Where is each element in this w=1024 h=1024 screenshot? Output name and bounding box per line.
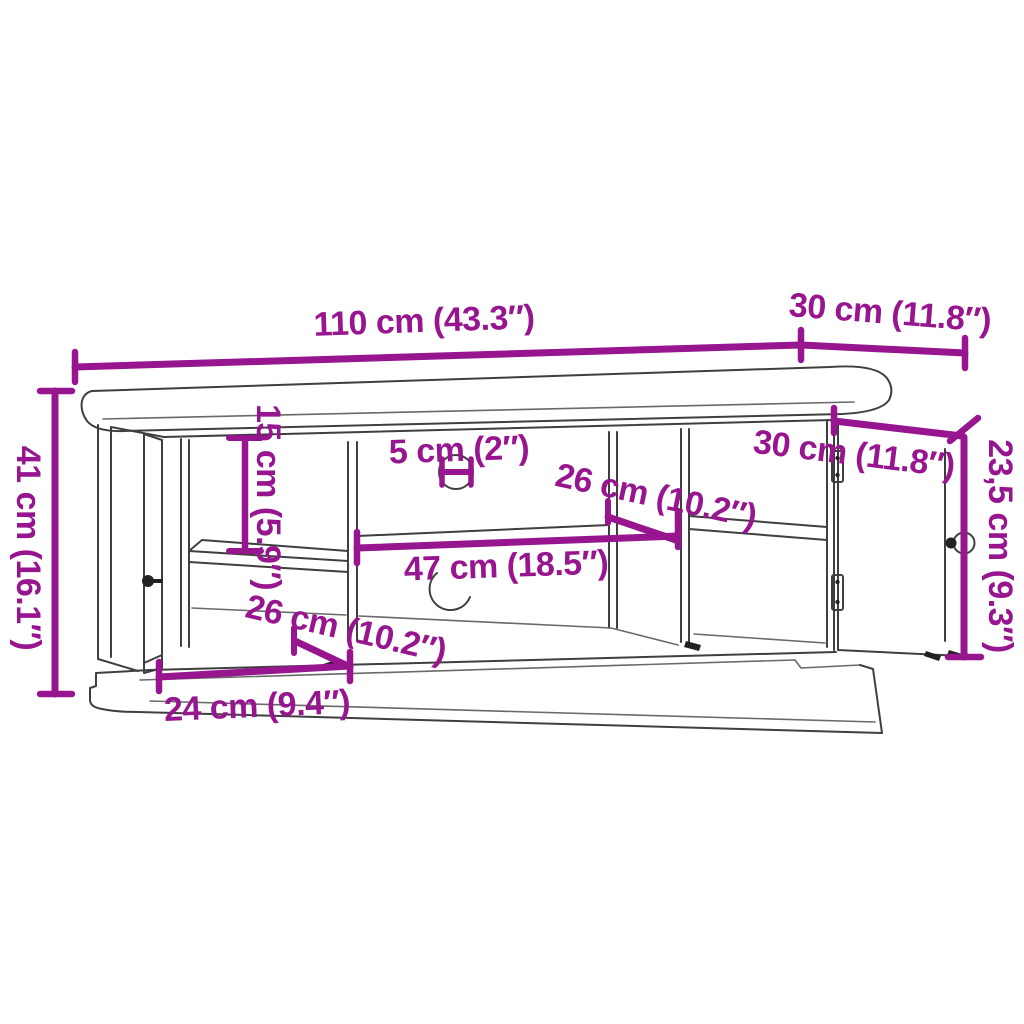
left-door-edge — [144, 434, 162, 663]
dim-line-top-depth — [801, 338, 965, 368]
product-dimension-diagram: 110 cm (43.3″) 30 cm (11.8″) 41 cm (16.1… — [0, 0, 1024, 1024]
dim-label-cable-hole-diameter: 5 cm (2″) — [388, 431, 529, 470]
dim-label-shelf-opening-height: 15 cm (5.9″) — [251, 404, 285, 590]
left-door-knob — [142, 575, 154, 587]
dim-label-open-door-height: 23,5 cm (9.3″) — [983, 439, 1017, 652]
plinth-left-cap — [90, 670, 150, 712]
dim-label-top-width: 110 cm (43.3″) — [313, 300, 535, 342]
plinth-right-cap — [860, 665, 882, 733]
tv-stand-line-art — [0, 0, 1024, 1024]
plinth-seam — [150, 652, 836, 670]
dim-label-middle-opening-width: 47 cm (18.5″) — [403, 545, 609, 586]
dim-label-overall-height: 41 cm (16.1″) — [11, 446, 45, 650]
right-door-knob — [946, 538, 957, 549]
dim-label-left-door-width: 24 cm (9.4″) — [163, 685, 350, 727]
